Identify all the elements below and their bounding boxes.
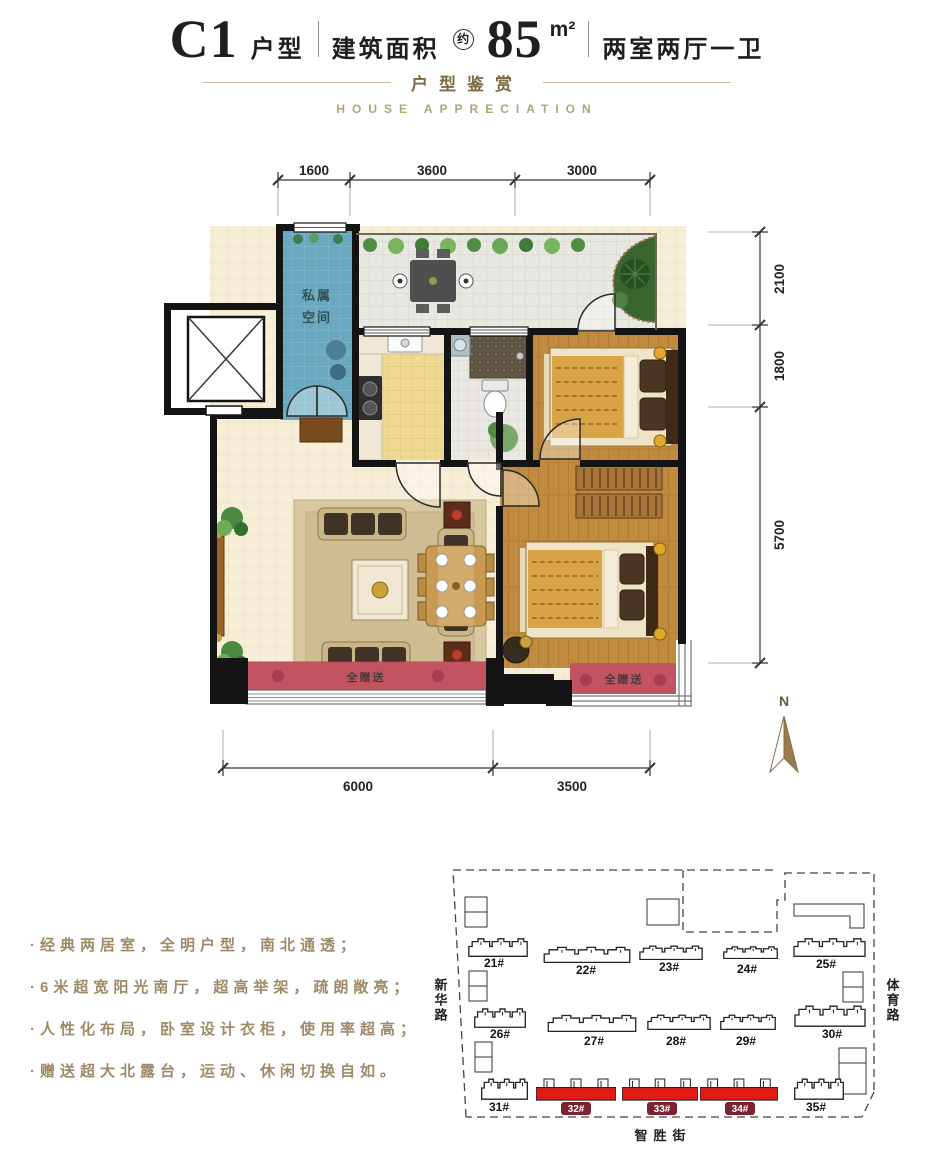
building-27: [548, 1016, 636, 1032]
unit-type-label: 户型: [251, 29, 305, 64]
building-label: 22#: [576, 963, 596, 977]
highlighted-badges: 32# 33# 34#: [561, 1102, 755, 1115]
private-space-label-line1: 私属: [302, 288, 332, 303]
building-label: 21#: [484, 956, 504, 970]
unit-code: C1: [170, 12, 238, 66]
dim-right-2: 1800: [772, 351, 787, 381]
building-35: [795, 1079, 844, 1099]
building-label: 23#: [659, 960, 679, 974]
private-space-label-line2: 空间: [302, 310, 332, 325]
street-west: 新华路: [433, 977, 448, 1023]
building-23: [640, 946, 702, 959]
gift-label-south: 全赠送: [346, 670, 386, 684]
north-label: N: [779, 693, 789, 709]
site-structures: [465, 897, 866, 1094]
building-label: 28#: [666, 1034, 686, 1048]
building-26: [475, 1009, 526, 1027]
header-divider: [588, 21, 589, 57]
badge-label: 32#: [568, 1104, 585, 1115]
subtitle-line-right: [543, 82, 731, 83]
feature-item: ·赠送超大北露台，运动、休闲切换自如。: [30, 1060, 420, 1081]
subtitle-en: HOUSE APPRECIATION: [0, 102, 934, 116]
south-balcony: 全赠送: [246, 662, 486, 704]
area-value: 85: [487, 12, 543, 66]
lamp-icon: [654, 347, 666, 359]
terrace-plants-icon: [363, 238, 585, 254]
subtitle-cn: 户型鉴赏: [411, 70, 523, 95]
street-south: 智胜街: [634, 1128, 691, 1143]
elevator: [188, 317, 264, 415]
north-arrow-icon: N: [770, 693, 798, 772]
street-labels: 新华路 体育路 智胜街: [433, 977, 900, 1143]
building-label: 35#: [806, 1100, 826, 1114]
street-east: 体育路: [885, 977, 900, 1023]
building-label: 26#: [490, 1027, 510, 1041]
building-22: [544, 947, 630, 962]
feature-item: ·经典两居室，全明户型，南北通透；: [30, 934, 420, 955]
dim-top-3: 3000: [567, 163, 597, 178]
building-32-highlighted: [536, 1079, 616, 1100]
feature-item: ·人性化布局，卧室设计衣柜，使用率超高；: [30, 1018, 420, 1039]
kitchen: [356, 332, 448, 460]
door-mat-icon: [300, 418, 342, 442]
plan-header: C1 户型 建筑面积 约 85 m² 两室两厅一卫: [0, 12, 934, 66]
dim-top-2: 3600: [417, 163, 447, 178]
dim-right-3: 5700: [772, 520, 787, 550]
lamp-icon: [654, 543, 666, 555]
building-label: 30#: [822, 1027, 842, 1041]
area-label: 建筑面积: [332, 29, 440, 64]
building-29: [721, 1015, 775, 1029]
approx-circle-icon: 约: [453, 29, 474, 50]
building-label: 29#: [736, 1034, 756, 1048]
site-map: 21# 22# 23# 24# 25# 26# 27# 28# 29# 30# …: [426, 860, 934, 1152]
building-25: [794, 939, 865, 957]
header-divider: [318, 21, 319, 57]
badge-label: 34#: [732, 1104, 749, 1115]
gift-label-east: 全赠送: [604, 672, 644, 686]
layout-label: 两室两厅一卫: [602, 29, 764, 64]
area-unit: m²: [550, 18, 576, 42]
dim-bottom-2: 3500: [557, 779, 587, 794]
building-label: 31#: [489, 1100, 509, 1114]
floor-plan: 私属 空间: [148, 150, 838, 810]
lamp-icon: [654, 628, 666, 640]
lamp-icon: [654, 435, 666, 447]
building-28: [648, 1015, 710, 1029]
feature-list: ·经典两居室，全明户型，南北通透； ·6米超宽阳光南厅，超高举架，疏朗敞亮； ·…: [30, 934, 420, 1102]
building-33-highlighted: [622, 1079, 698, 1100]
building-24: [724, 947, 777, 959]
bathroom: [448, 332, 532, 460]
building-21: [469, 939, 527, 957]
feature-item: ·6米超宽阳光南厅，超高举架，疏朗敞亮；: [30, 976, 420, 997]
toilet-icon: [482, 380, 508, 417]
building-label: 24#: [737, 962, 757, 976]
dim-top-1: 1600: [299, 163, 329, 178]
building-34-highlighted: [700, 1079, 778, 1100]
subtitle-line-left: [203, 82, 391, 83]
building-30: [795, 1006, 865, 1026]
dim-right-1: 2100: [772, 264, 787, 294]
building-label: 25#: [816, 957, 836, 971]
building-label: 27#: [584, 1034, 604, 1048]
badge-label: 33#: [654, 1104, 671, 1115]
subtitle: 户型鉴赏 HOUSE APPRECIATION: [0, 70, 934, 116]
dining-table-icon: [418, 546, 494, 626]
dim-bottom-1: 6000: [343, 779, 373, 794]
building-31: [482, 1079, 528, 1099]
